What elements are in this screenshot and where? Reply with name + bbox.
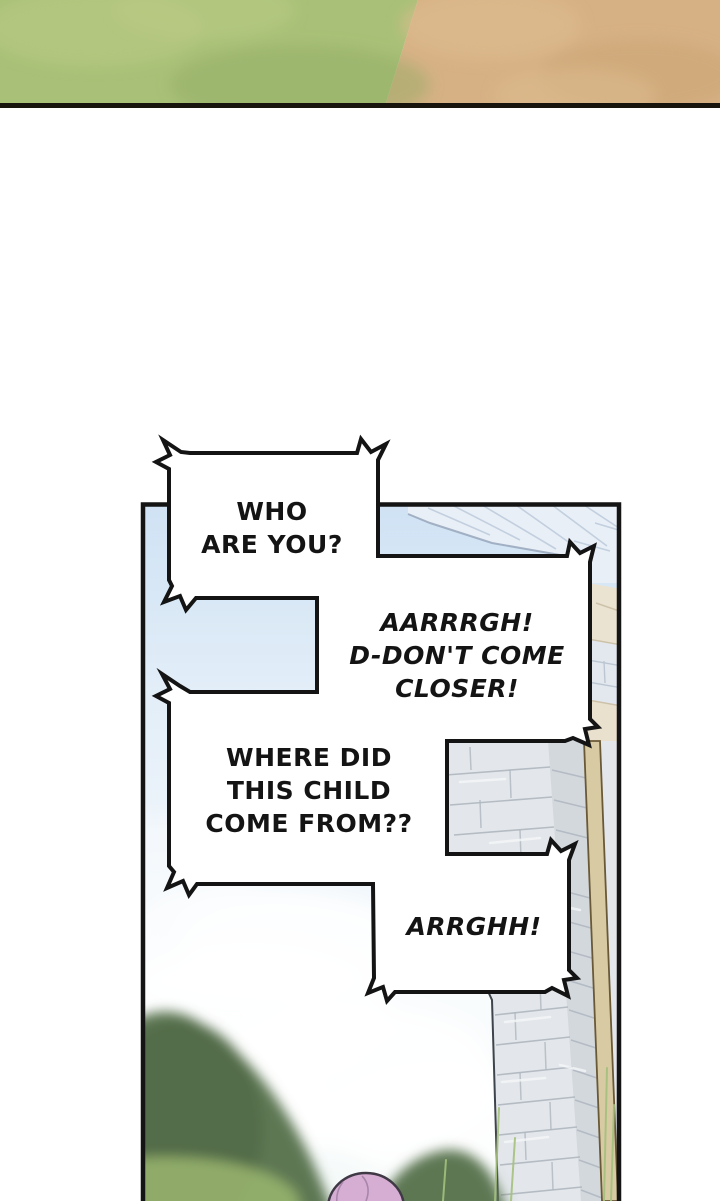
bubble-line: WHO: [162, 495, 382, 528]
speech-bubble-arrghh: ARRGHH!: [359, 910, 589, 943]
bubble-line: COME FROM??: [194, 807, 424, 840]
bubble-line: WHERE DID: [194, 741, 424, 774]
bubble-line: THIS CHILD: [194, 774, 424, 807]
bubble-line: CLOSER!: [342, 672, 572, 705]
comic-panel: [0, 0, 720, 1201]
speech-bubble-who-are-you: WHO ARE YOU?: [162, 495, 382, 561]
speech-bubble-where-did-child: WHERE DID THIS CHILD COME FROM??: [194, 741, 424, 840]
bubble-line: AARRRGH!: [342, 606, 572, 639]
speech-bubble-dont-come-closer: AARRRGH! D-DON'T COME CLOSER!: [342, 606, 572, 705]
webtoon-page: WHO ARE YOU? AARRRGH! D-DON'T COME CLOSE…: [0, 0, 720, 1201]
bubble-line: D-DON'T COME: [342, 639, 572, 672]
bubble-line: ARE YOU?: [162, 528, 382, 561]
bubble-line: ARRGHH!: [359, 910, 589, 943]
